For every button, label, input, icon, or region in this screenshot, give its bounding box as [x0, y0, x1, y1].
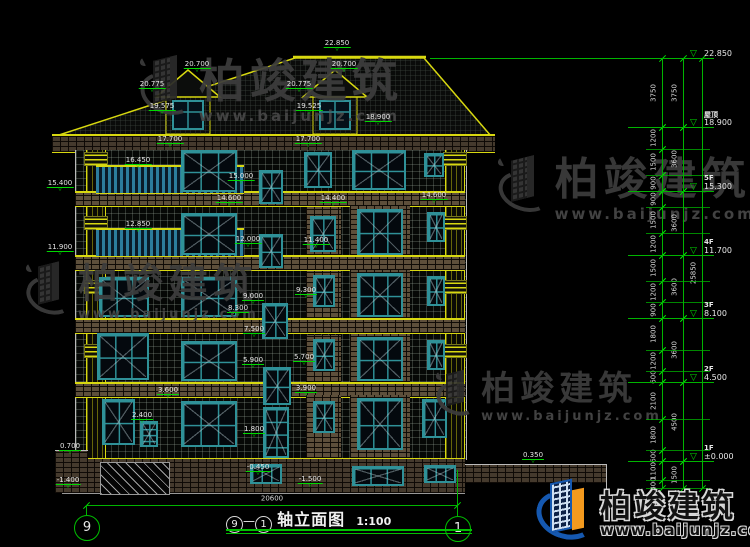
baijun-logo: 柏竣建筑 www.baijunjz.com [536, 477, 750, 547]
elevation-annotation: 11.900▿ [47, 244, 74, 256]
elevation-annotation: 17.700▿ [157, 136, 184, 148]
watermark-building-icon [436, 372, 475, 411]
axis-bubble-9: 9 [74, 515, 100, 541]
level-value: 15.300 [704, 182, 732, 191]
elevation-annotation: 14.600▿ [216, 195, 243, 207]
dimension-extension-line [646, 302, 710, 303]
title-name: 轴立面图 [277, 510, 345, 529]
stair-window [259, 234, 283, 268]
level-triangle-icon: ▽ [690, 50, 697, 59]
level-triangle-icon: ▽ [690, 183, 697, 192]
elevation-annotation: 15.000▿ [228, 173, 255, 185]
window [357, 273, 403, 317]
dimension-value: 900 [651, 176, 658, 189]
elevation-annotation: -1.400▿ [56, 477, 81, 489]
elevation-annotation: 3.600▿ [157, 387, 179, 399]
window [424, 153, 444, 177]
level-triangle-icon: ▽ [690, 247, 697, 256]
title-scale: 1:100 [356, 515, 391, 528]
window [97, 333, 149, 380]
dimension-extension-line [646, 149, 710, 150]
elevation-annotation: 7.500▿ [243, 326, 265, 338]
watermark-building-icon [26, 264, 72, 310]
dimension-value: 900 [651, 192, 658, 205]
window [181, 213, 237, 255]
elevation-annotation: 0.700▿ [59, 443, 81, 455]
basement-window [424, 465, 456, 483]
watermark: 柏竣建筑www.baijunjz.com [436, 370, 662, 424]
elevation-annotation: 12.850▿ [125, 221, 152, 233]
window [313, 339, 335, 371]
level-value: 8.100 [704, 309, 727, 318]
axis-stem [86, 505, 87, 515]
dimension-value: 1800 [651, 325, 658, 343]
elevation-annotation: 9.300▿ [295, 287, 317, 299]
level-triangle-icon: ▽ [690, 374, 697, 383]
elevation-annotation: 12.000▿ [235, 236, 262, 248]
dimension-extension-line [646, 450, 710, 451]
elevation-annotation: 3.900▿ [295, 385, 317, 397]
level-line [628, 127, 714, 128]
elevation-annotation: 2.400▿ [131, 412, 153, 424]
level-label: 3F [704, 301, 714, 309]
dimension-value: 1500 [651, 153, 658, 171]
watermark-url: www.baijunjz.com [481, 409, 662, 424]
cad-elevation-canvas: 20600 9 1 9—1 轴立面图 1:100 柏竣建筑 www.baijun… [0, 0, 750, 547]
pilaster-capital [443, 280, 467, 294]
axis-stem [457, 470, 458, 516]
dimension-extension-line [646, 207, 710, 208]
elevation-annotation: 14.400▿ [320, 195, 347, 207]
window [304, 152, 332, 188]
garage-ramp-hatch [100, 462, 170, 495]
elevation-annotation: 19.575▿ [149, 103, 176, 115]
dimension-extension-line [646, 419, 710, 420]
window [181, 401, 237, 447]
dimension-extension-line [646, 175, 710, 176]
window [427, 340, 445, 370]
logo-building-icon [550, 479, 572, 534]
level-line [628, 461, 714, 462]
level-line [628, 255, 714, 256]
window [357, 337, 403, 381]
pilaster-capital [443, 344, 467, 358]
elevation-annotation: -1.500▿ [298, 476, 323, 488]
elevation-annotation: 16.450▿ [125, 157, 152, 169]
window [181, 150, 237, 192]
level-line [628, 58, 714, 59]
watermark-text: 柏竣建筑 [78, 262, 259, 306]
stair-window [263, 367, 291, 405]
window [357, 398, 403, 450]
elevation-annotation: 5.900▿ [242, 357, 264, 369]
elevation-annotation: 20.700▿ [184, 61, 211, 73]
level-line [628, 318, 714, 319]
dimension-line [662, 58, 663, 488]
elevation-annotation: 11.400▿ [303, 237, 330, 249]
logo-text: 柏竣建筑 [600, 481, 736, 526]
level-value: 4.500 [704, 373, 727, 382]
logo-url: www.baijunjz.com [600, 521, 750, 539]
watermark: 柏竣建筑www.baijunjz.com [26, 262, 259, 322]
elevation-annotation: 17.700▿ [295, 136, 322, 148]
pilaster-capital [443, 152, 467, 166]
level-label: 1F [704, 444, 714, 452]
elevation-annotation: 20.775▿ [139, 81, 166, 93]
elevation-annotation: 19.525▿ [296, 103, 323, 115]
watermark: 柏竣建筑www.baijunjz.com [140, 56, 403, 125]
dimension-value: 1200 [651, 352, 658, 370]
elevation-annotation: 1.800▿ [243, 426, 265, 438]
elevation-annotation: 15.400▿ [47, 180, 74, 192]
level-value: 22.850 [704, 49, 732, 58]
window [427, 212, 445, 242]
level-line [628, 382, 714, 383]
dimension-value: 3600 [672, 150, 679, 168]
level-triangle-icon: ▽ [690, 119, 697, 128]
window [181, 341, 237, 381]
title-underline [226, 529, 472, 531]
elevation-annotation: 20.700▿ [331, 61, 358, 73]
dimension-value: 1200 [651, 235, 658, 253]
title-dash: — [243, 514, 255, 528]
window [357, 209, 403, 255]
dimension-line [702, 58, 703, 488]
dimension-value: 2100 [651, 392, 658, 410]
elevation-annotation: -0.450▿ [246, 464, 271, 476]
dimension-line [683, 58, 684, 488]
dimension-extension-line [646, 371, 710, 372]
pilaster-capital [443, 216, 467, 230]
level-label: 4F [704, 238, 714, 246]
dimension-value: 3750 [672, 84, 679, 102]
dimension-value: 1500 [651, 211, 658, 229]
elevation-annotation: 18.900▿ [365, 114, 392, 126]
level-line [628, 191, 714, 192]
level-label: 5F [704, 174, 714, 182]
logo-building-icon [572, 488, 584, 531]
dimension-value: 4500 [672, 413, 679, 431]
elevation-annotation: 0.350▿ [522, 452, 544, 464]
level-triangle-icon: ▽ [690, 453, 697, 462]
window [427, 276, 445, 306]
level-value: 18.900 [704, 118, 732, 127]
dimension-value: 1800 [651, 426, 658, 444]
dimension-extension-line [646, 233, 710, 234]
level-label: 2F [704, 365, 714, 373]
level-value: 11.700 [704, 246, 732, 255]
entrance-door [263, 407, 289, 458]
dimension-value: 1200 [651, 283, 658, 301]
dimension-value: 3600 [672, 214, 679, 232]
watermark-building-icon [498, 158, 549, 209]
bottom-dimension-value: 20600 [261, 496, 283, 503]
stair-window [259, 170, 283, 204]
dimension-extension-line [646, 281, 710, 282]
window [352, 150, 406, 190]
title-underline [226, 533, 472, 534]
dimension-value: 1200 [651, 129, 658, 147]
window [313, 401, 335, 433]
dimension-value: 3750 [651, 84, 658, 102]
elevation-annotation: 22.850▿ [324, 40, 351, 52]
elevation-annotation: 20.775▿ [286, 81, 313, 93]
level-triangle-icon: ▽ [690, 310, 697, 319]
watermark-text: 柏竣建筑 [481, 370, 662, 408]
elevation-annotation: 5.700▿ [293, 354, 315, 366]
dimension-value: 900 [651, 303, 658, 316]
level-value: ±0.000 [704, 452, 734, 461]
elevation-annotation: 8.300▿ [227, 305, 249, 317]
dimension-value: 1500 [651, 259, 658, 277]
dimension-extension-line [646, 350, 710, 351]
elevation-annotation: 14.600▿ [421, 192, 448, 204]
stair-window [262, 303, 288, 339]
basement-window [352, 466, 404, 486]
pilaster-capital [84, 152, 108, 166]
